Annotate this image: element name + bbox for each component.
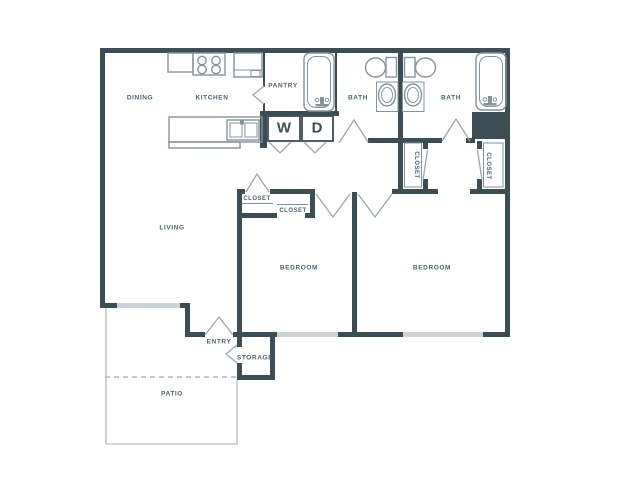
room-label-closet-hall-right: CLOSET	[486, 152, 493, 179]
room-label-bath2: BATH	[441, 93, 461, 101]
room-label-closet-hall-left: CLOSET	[414, 151, 421, 178]
pantry-door	[253, 86, 264, 104]
storage-door	[226, 345, 237, 363]
window-living	[117, 303, 180, 308]
windows	[117, 303, 483, 337]
entry-door	[205, 317, 233, 335]
patio-outline	[105, 308, 240, 444]
bath2-door	[442, 119, 470, 141]
bedroom2-door	[358, 194, 392, 217]
bathtub-2	[476, 53, 506, 110]
room-label-patio: PATIO	[161, 389, 183, 397]
window-bedroom2	[403, 332, 483, 337]
washer-label: W	[277, 120, 291, 137]
kitchen-island	[169, 117, 262, 148]
toilet-2	[405, 58, 436, 78]
floor-plan-drawing	[0, 0, 640, 480]
toilet-1	[366, 58, 397, 78]
room-label-kitchen: KITCHEN	[195, 93, 228, 101]
hall-closet-left-door	[423, 150, 428, 180]
dryer-bifold-door	[304, 142, 326, 153]
room-label-bedroom2: BEDROOM	[413, 263, 451, 271]
kitchen-sink	[227, 120, 259, 140]
room-label-closet-bedroom1: CLOSET	[279, 207, 306, 214]
room-label-living: LIVING	[159, 223, 184, 231]
living-closet-door	[246, 174, 269, 192]
window-bedroom1	[277, 332, 338, 337]
bath-fixtures	[304, 53, 506, 112]
room-label-entry: ENTRY	[207, 337, 232, 345]
hall-closet-right-door	[478, 150, 483, 180]
dryer-label: D	[312, 120, 323, 137]
room-label-dining: DINING	[127, 93, 153, 101]
room-label-closet-living: CLOSET	[243, 195, 270, 202]
refrigerator	[234, 53, 262, 77]
bath1-door	[339, 120, 368, 143]
doors	[205, 86, 482, 363]
room-label-bath1: BATH	[348, 93, 368, 101]
counter	[168, 53, 193, 72]
washer-bifold-door	[269, 142, 291, 153]
sink-vanity-2	[403, 82, 425, 112]
floor-plan: DINING KITCHEN PANTRY BATH BATH LIVING C…	[0, 0, 640, 480]
bathtub-1	[304, 53, 334, 111]
sink-vanity-1	[377, 82, 399, 112]
stove	[193, 53, 225, 75]
room-label-storage: STORAGE	[237, 353, 273, 361]
room-label-bedroom1: BEDROOM	[280, 263, 318, 271]
bedroom1-door	[316, 194, 350, 217]
room-label-pantry: PANTRY	[268, 81, 298, 89]
